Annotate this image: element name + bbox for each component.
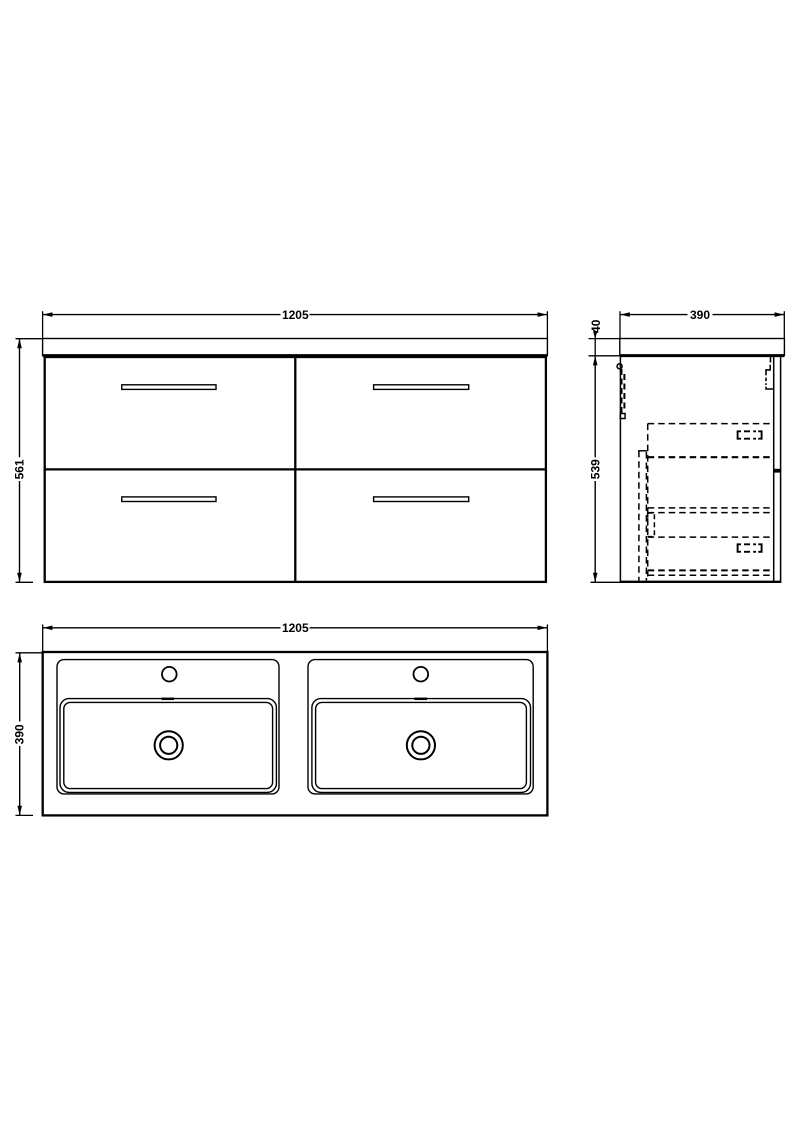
svg-text:539: 539 (589, 459, 603, 479)
svg-text:1205: 1205 (282, 308, 309, 322)
svg-text:561: 561 (13, 459, 27, 479)
svg-text:390: 390 (13, 724, 27, 744)
svg-text:390: 390 (690, 308, 710, 322)
svg-text:40: 40 (589, 319, 603, 333)
svg-text:1205: 1205 (282, 621, 309, 635)
